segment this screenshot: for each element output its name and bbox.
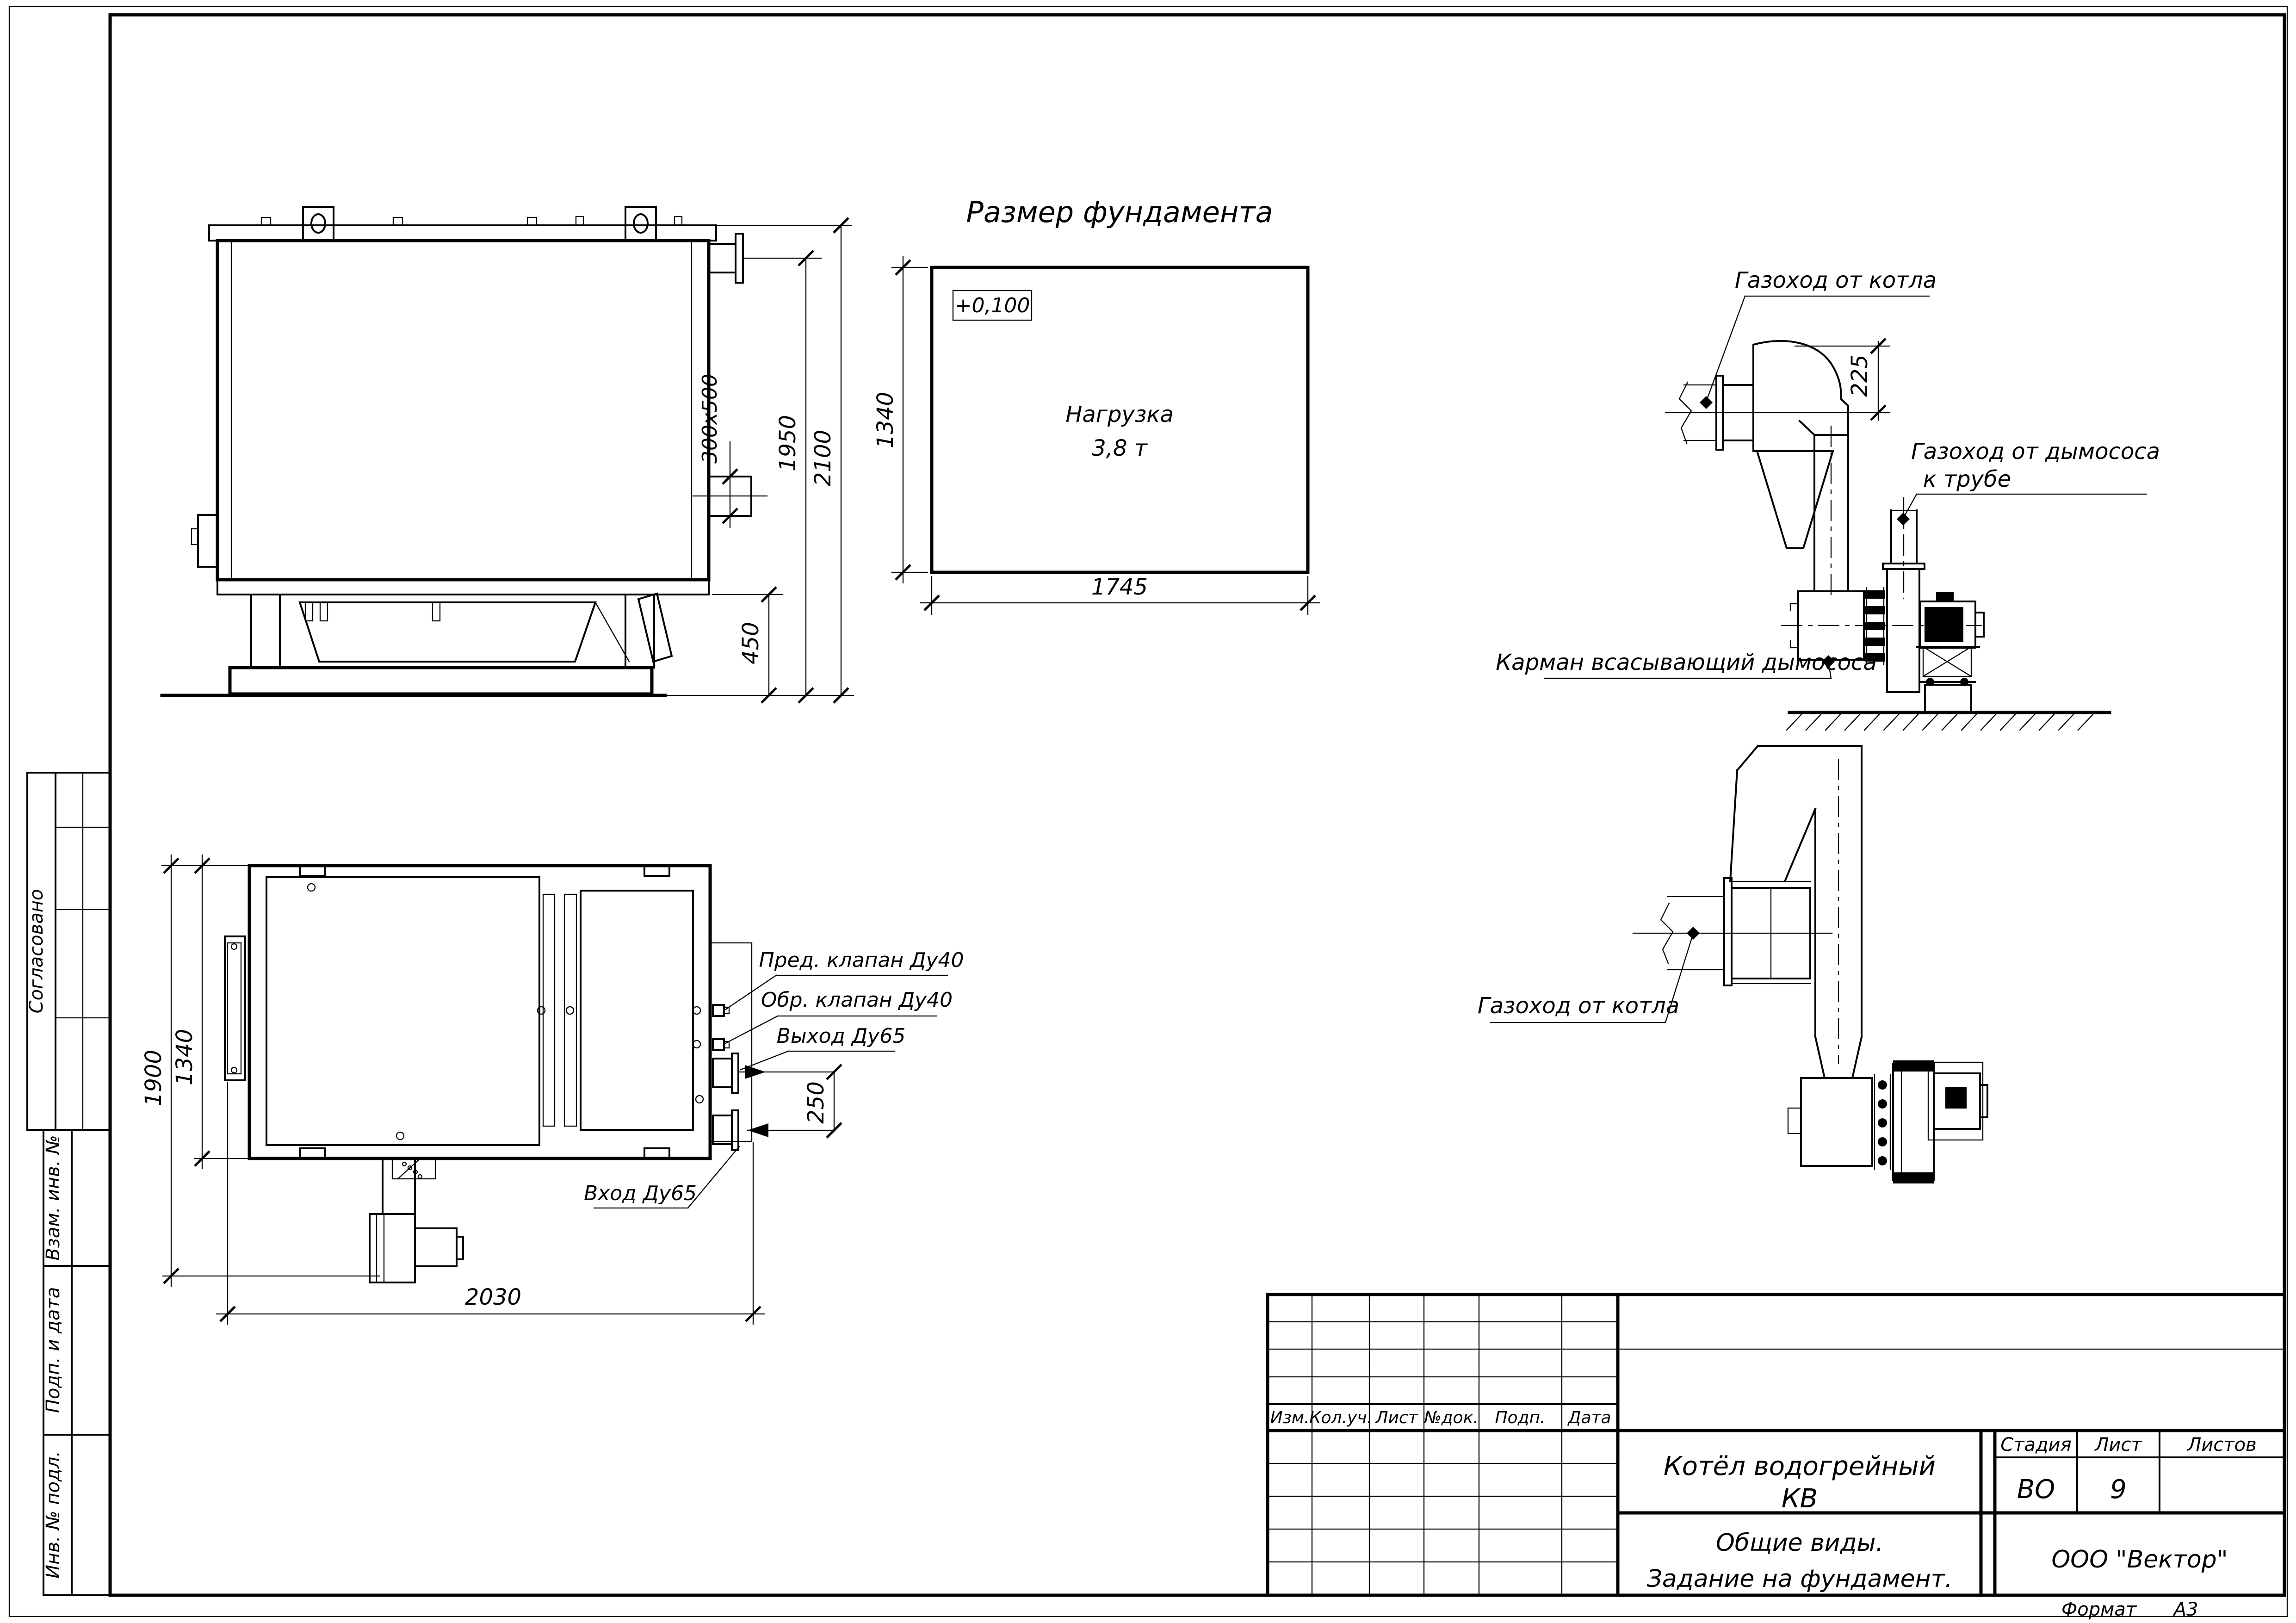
leader-diamond <box>1687 927 1700 940</box>
stamp-approved: Согласовано <box>26 773 110 1130</box>
dim-plan-width: 2030 <box>465 1284 521 1310</box>
product-name-line2: КВ <box>1782 1484 1818 1514</box>
stamp-approved-label: Согласовано <box>26 889 47 1014</box>
rev-header-koluch: Кол.уч. <box>1309 1408 1372 1427</box>
format-value: А3 <box>2172 1599 2198 1620</box>
dim-225: 225 <box>1795 339 1890 420</box>
label-fan-duct-line1: Газоход от дымососа <box>1911 439 2160 465</box>
rev-header-podp: Подп. <box>1495 1408 1546 1427</box>
sheets-header: Листов <box>2186 1434 2256 1456</box>
sheet-frame <box>9 6 2287 1617</box>
check-valve <box>713 1039 729 1050</box>
stage-value: ВО <box>2017 1474 2055 1505</box>
doc-name-line2: Задание на фундамент. <box>1647 1565 1953 1593</box>
stamp-replaced-inv: Взам. инв. № <box>43 1130 110 1266</box>
label-duct-from-boiler: Газоход от котла <box>1735 267 1937 293</box>
dim-ports-offset: 250 <box>803 1081 829 1124</box>
stamp-sign-date: Подп. и дата <box>43 1266 110 1435</box>
dim-base-height: 450 <box>738 622 764 664</box>
view-flue-plan: Газоход от котла <box>1478 746 1987 1183</box>
stamp-sign-date-label: Подп. и дата <box>43 1287 64 1413</box>
elevation-mark: +0,100 <box>953 291 1032 320</box>
label-safety-valve: Пред. клапан Ду40 <box>759 948 964 972</box>
dim-flue-offset: 225 <box>1847 354 1873 397</box>
stamp-replaced-inv-label: Взам. инв. № <box>43 1135 64 1261</box>
rev-header-izm: Изм. <box>1270 1408 1310 1427</box>
dim-duct-size: 300x500 <box>698 374 722 464</box>
elevation-mark-value: +0,100 <box>955 294 1030 317</box>
format-note: Формат А3 <box>2061 1599 2198 1620</box>
label-outlet: Выход Ду65 <box>777 1024 906 1048</box>
dim-plan-depth: 1900 <box>141 1050 167 1106</box>
rev-header-list: Лист <box>1374 1408 1418 1427</box>
stage-header: Стадия <box>2000 1434 2071 1456</box>
sheet-value: 9 <box>2110 1474 2127 1505</box>
lifting-lug <box>303 207 334 241</box>
view-foundation-plan: Размер фундамента +0,100 Нагрузка 3,8 т … <box>873 195 1319 614</box>
label-check-valve: Обр. клапан Ду40 <box>761 988 953 1012</box>
foundation-load-line2: 3,8 т <box>1092 435 1148 461</box>
flange-bolts-plan <box>1875 1074 1890 1170</box>
revision-table: Изм. Кол.уч. Лист №док. Подп. Дата <box>1268 1295 1618 1595</box>
view-boiler-side-elevation: 300x500 450 1950 2100 <box>162 207 854 703</box>
stamp-inv-original-label: Инв. № подл. <box>43 1451 64 1579</box>
stamp-inv-original: Инв. № подл. <box>43 1435 110 1595</box>
dim-foundation-depth: 1340 <box>873 392 898 448</box>
side-view-dimensions: 300x500 450 1950 2100 <box>652 218 854 703</box>
sheet-header: Лист <box>2094 1434 2142 1456</box>
label-duct-from-boiler-plan: Газоход от котла <box>1478 993 1679 1019</box>
leader-diamond <box>1700 396 1713 409</box>
dim-flange-height: 1950 <box>775 415 801 471</box>
view-boiler-plan: Пред. клапан Ду40 Обр. клапан Ду40 Выход… <box>141 855 964 1324</box>
drawing-sheet: Согласовано Взам. инв. № Подп. и дата Ин… <box>0 0 2296 1623</box>
dim-foundation-width: 1745 <box>1091 574 1148 600</box>
foundation-load-line1: Нагрузка <box>1065 402 1174 427</box>
left-margin-stamps: Согласовано Взам. инв. № Подп. и дата Ин… <box>26 773 110 1595</box>
dim-total-height: 2100 <box>810 430 836 486</box>
label-fan-duct-line2: к трубе <box>1923 466 2011 492</box>
rev-header-data: Дата <box>1567 1408 1611 1427</box>
title-block: Изм. Кол.уч. Лист №док. Подп. Дата Котёл… <box>1268 1295 2284 1595</box>
label-suction-pocket: Карман всасывающий дымососа <box>1496 650 1877 675</box>
burner-assembly <box>370 1158 463 1282</box>
ground-hatching <box>1787 712 2110 730</box>
foundation-title: Размер фундамента <box>966 195 1273 229</box>
doc-name-line1: Общие виды. <box>1716 1529 1883 1557</box>
product-name-line1: Котёл водогрейный <box>1664 1451 1936 1481</box>
fan-stand <box>1917 647 1979 712</box>
format-label: Формат <box>2061 1599 2137 1620</box>
lifting-lug <box>625 207 656 241</box>
fan-plan <box>1893 1060 1987 1183</box>
fan-motor <box>1920 592 1984 648</box>
safety-valve <box>713 1005 729 1016</box>
rev-header-ndok: №док. <box>1423 1408 1479 1427</box>
organization-name: ООО "Вектор" <box>2051 1546 2228 1573</box>
label-inlet: Вход Ду65 <box>584 1182 697 1205</box>
plan-dimensions: 1900 1340 250 2030 <box>141 855 842 1324</box>
view-flue-elevation: Газоход от котла 225 Газоход от дымос <box>1496 267 2160 730</box>
dim-plan-inner-depth: 1340 <box>172 1029 198 1085</box>
